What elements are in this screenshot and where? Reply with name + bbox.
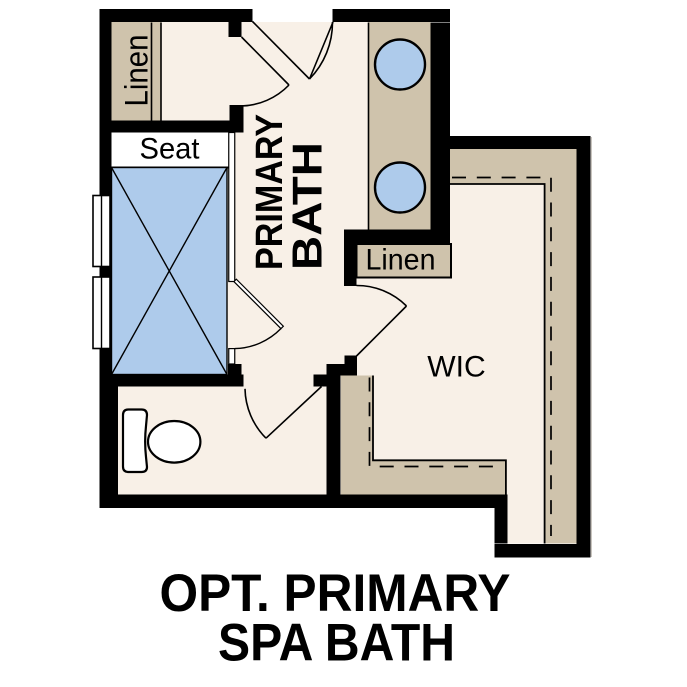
svg-text:Linen: Linen xyxy=(366,244,436,277)
svg-text:WIC: WIC xyxy=(427,351,486,384)
svg-text:Linen: Linen xyxy=(119,35,155,107)
svg-text:SPA BATH: SPA BATH xyxy=(218,614,455,673)
svg-text:Seat: Seat xyxy=(140,133,201,166)
svg-text:BATH: BATH xyxy=(284,142,331,270)
